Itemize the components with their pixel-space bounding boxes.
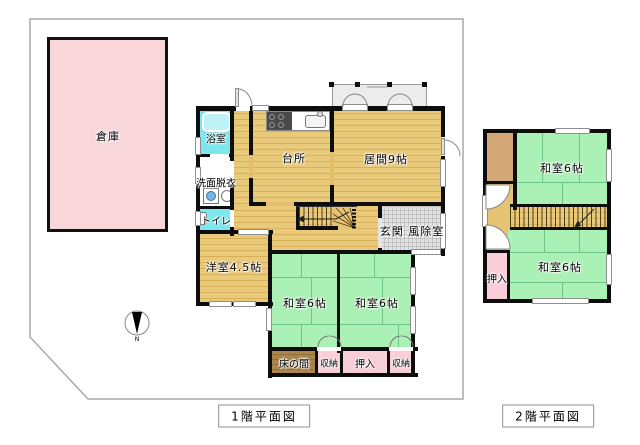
door-arc bbox=[486, 225, 510, 249]
door-arc bbox=[343, 94, 355, 106]
symbols-layer bbox=[0, 0, 640, 445]
stair-arrow-head bbox=[297, 216, 304, 223]
stair-arrow-head bbox=[574, 220, 581, 228]
door-arc bbox=[355, 94, 367, 106]
door-arc bbox=[388, 94, 400, 106]
door-arc bbox=[318, 336, 329, 347]
door-arc bbox=[486, 185, 510, 209]
door-arc bbox=[402, 336, 413, 347]
door-arc bbox=[330, 336, 341, 347]
door-arc bbox=[400, 94, 412, 106]
door-arc bbox=[445, 140, 460, 156]
stair-direction-arrow bbox=[303, 212, 349, 219]
stair-winder-lines bbox=[333, 208, 355, 228]
floor-plan-canvas: N bbox=[0, 0, 640, 445]
door-arc bbox=[239, 89, 252, 106]
door-arc bbox=[390, 336, 401, 347]
